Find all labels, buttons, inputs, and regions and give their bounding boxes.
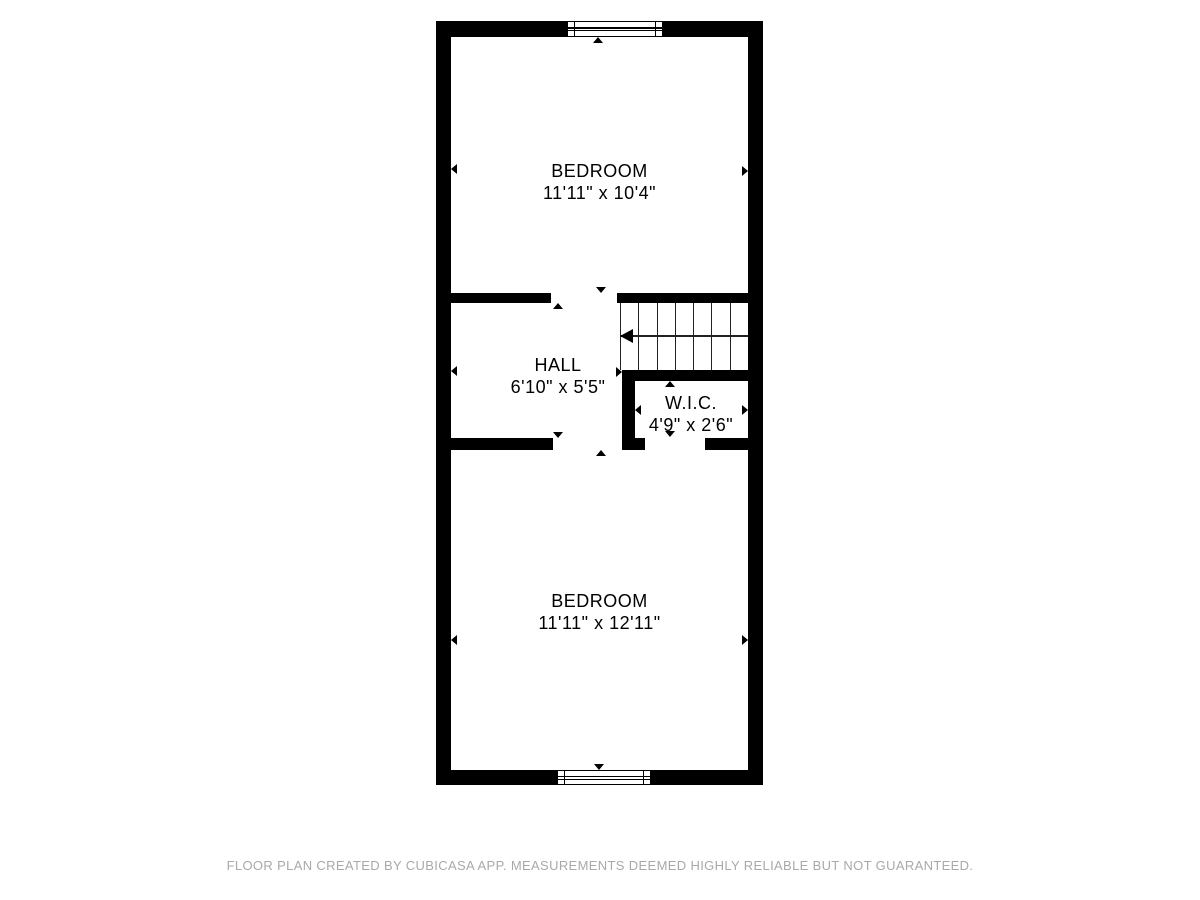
room-dimensions: 11'11" x 10'4" [451,182,748,204]
window-top [567,21,663,37]
wall-wic-door-right-stub [705,438,748,450]
arrow-up-icon [593,37,603,43]
window-glass-line [558,776,650,777]
stair-direction-arrow-icon [620,329,633,343]
window-jamb [643,771,644,784]
arrow-up-icon [553,303,563,309]
window-glass-line [558,779,650,780]
window-jamb [655,22,656,36]
room-dimensions: 11'11" x 12'11" [451,612,748,634]
floor-plan: BEDROOM 11'11" x 10'4" HALL 6'10" x 5'5"… [436,21,763,785]
room-label-bedroom-top: BEDROOM 11'11" x 10'4" [451,160,748,204]
arrow-left-icon [451,635,457,645]
window-jamb [574,22,575,36]
window-glass-line [568,27,662,28]
room-name: BEDROOM [451,590,748,612]
arrow-down-icon [594,764,604,770]
wall-hall-bedroombottom [451,438,553,450]
outer-wall-left [436,21,451,785]
room-label-hall: HALL 6'10" x 5'5" [478,354,638,398]
window-jamb [564,771,565,784]
wall-wic-door-left-stub [622,438,645,450]
wall-bedroomtop-hall-left [451,293,551,303]
window-glass-line [568,30,662,31]
window-bottom [557,770,651,785]
room-name: BEDROOM [451,160,748,182]
arrow-left-icon [451,366,457,376]
arrow-down-icon [553,432,563,438]
arrow-down-icon [596,287,606,293]
room-label-bedroom-bottom: BEDROOM 11'11" x 12'11" [451,590,748,634]
wall-stairs-wic [622,370,748,381]
arrow-up-icon [596,450,606,456]
arrow-up-icon [665,381,675,387]
arrow-right-icon [742,635,748,645]
stair-direction-line [620,335,748,337]
footer-disclaimer: FLOOR PLAN CREATED BY CUBICASA APP. MEAS… [0,858,1200,873]
wall-bedroomtop-stairs [617,293,748,303]
room-name: W.I.C. [631,392,751,414]
room-dimensions: 4'9" x 2'6" [631,414,751,436]
room-label-wic: W.I.C. 4'9" x 2'6" [631,392,751,436]
room-name: HALL [478,354,638,376]
room-dimensions: 6'10" x 5'5" [478,376,638,398]
